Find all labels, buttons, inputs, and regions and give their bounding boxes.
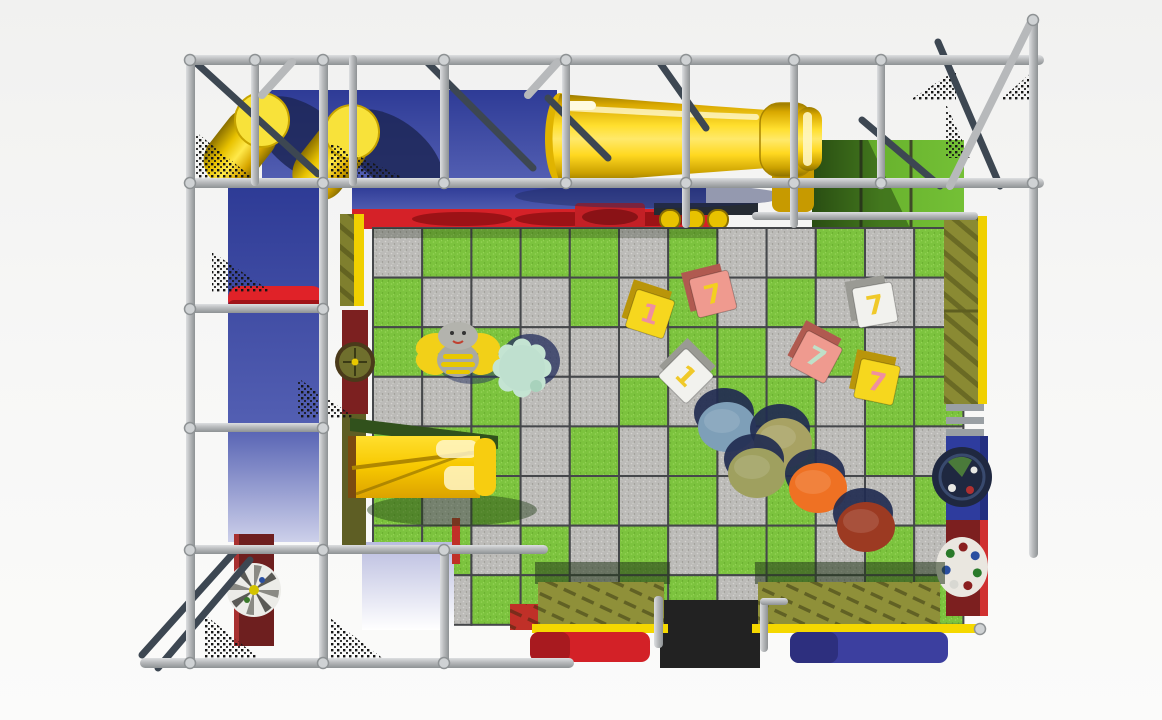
floor-tile (521, 476, 570, 526)
climb-bar (946, 404, 984, 411)
ramp-yellow-edge-left (532, 624, 668, 633)
frame-joint (185, 55, 196, 66)
toy-block-yellow-7: 7 (847, 349, 902, 406)
floor-tile (668, 526, 717, 576)
frame-joint (1028, 15, 1039, 26)
slide-end-bumper (474, 438, 496, 496)
left-wall-blue-light (228, 432, 328, 542)
ramp-cushion-blue-shade (790, 632, 838, 663)
frame-joint (318, 178, 329, 189)
red-disc (412, 212, 512, 226)
yellow-edge-left (354, 214, 364, 306)
floor-tile (570, 278, 619, 328)
slide-lane-highlight (436, 440, 478, 458)
frame-beam-horizontal (186, 545, 548, 554)
tube-bell-highlight (566, 101, 596, 110)
frame-beam-vertical (877, 55, 885, 188)
floor-tile (865, 228, 914, 278)
floor-tile (619, 377, 668, 427)
floor-tile (471, 278, 520, 328)
frame-joint (561, 178, 572, 189)
frame-joint (789, 55, 800, 66)
frame-joint (789, 178, 800, 189)
frame-joint (185, 423, 196, 434)
frame-joint (318, 545, 329, 556)
floor-tile (570, 476, 619, 526)
roller-step (708, 210, 728, 229)
frame-beam-vertical (682, 55, 690, 228)
toy-block-white-7: 7 (845, 274, 899, 329)
floor-tile (767, 278, 816, 328)
floor-tile (717, 327, 766, 377)
frame-beam-horizontal (186, 55, 1044, 65)
ramp-shadow (755, 562, 945, 584)
frame-joint (318, 658, 329, 669)
frame-joint (561, 55, 572, 66)
floor-tile (373, 327, 422, 377)
frame-joint (185, 304, 196, 315)
floor-tile (816, 228, 865, 278)
turtle-head (530, 380, 542, 392)
entry-mat-black (660, 600, 760, 668)
frame-joint (975, 624, 986, 635)
frame-joint (185, 545, 196, 556)
floor-tile (570, 426, 619, 476)
ramp-yellow-edge-right (752, 624, 978, 633)
ramp-slat-texture (538, 582, 664, 626)
frame-joint (318, 423, 329, 434)
floor-tile (619, 476, 668, 526)
frame-beam-vertical (349, 55, 357, 186)
olive-slat-texture (340, 214, 354, 306)
frame-beam-vertical (186, 55, 195, 668)
playground-scene: 171777 (0, 0, 1162, 720)
frame-beam-horizontal (186, 304, 328, 313)
frame-joint (318, 55, 329, 66)
floor-tile (570, 377, 619, 427)
frame-joint (439, 178, 450, 189)
frame-beam-vertical (319, 55, 328, 668)
frame-beam-horizontal (186, 423, 328, 432)
floor-tile (373, 377, 422, 427)
floor-tile (521, 426, 570, 476)
frame-beam-vertical (1029, 16, 1038, 558)
frame-joint (439, 545, 450, 556)
frame-joint (1028, 178, 1039, 189)
frame-beam-vertical (562, 55, 570, 186)
slide-floor-shadow (367, 494, 537, 526)
handrail-post (654, 596, 663, 648)
frame-joint (185, 178, 196, 189)
frame-beam-horizontal (140, 658, 574, 668)
frame-joint (876, 178, 887, 189)
frame-beam-vertical (440, 545, 449, 668)
tube-landing-disc (582, 209, 638, 225)
frame-joint (681, 55, 692, 66)
handrail-post (760, 598, 768, 652)
tube-end-highlight (803, 112, 812, 166)
yellow-edge-right (978, 216, 987, 404)
roller-step (660, 210, 680, 229)
frame-joint (439, 658, 450, 669)
floor-tile (570, 327, 619, 377)
ramp-cushion-red-shade (530, 632, 570, 662)
frame-joint (185, 658, 196, 669)
frame-joint (876, 55, 887, 66)
floor-tile (668, 476, 717, 526)
frame-joint (681, 178, 692, 189)
floor-tile (373, 278, 422, 328)
floor-tile (619, 426, 668, 476)
floor-tile (865, 426, 914, 476)
frame-joint (318, 304, 329, 315)
climb-bar (946, 417, 984, 424)
playground-render: 171777 (0, 0, 1162, 720)
floor-tile (422, 278, 471, 328)
handrail-bar (760, 598, 788, 605)
floor-tile (521, 278, 570, 328)
floor-tile (422, 377, 471, 427)
frame-beam-horizontal (752, 212, 978, 220)
frame-beam-vertical (251, 55, 259, 186)
frame-joint (250, 55, 261, 66)
climb-bar (946, 429, 984, 436)
deck-cast-shadow (373, 228, 718, 238)
frame-beam-vertical (790, 55, 798, 228)
frame-beam-vertical (440, 55, 449, 186)
ramp-shadow (535, 562, 670, 584)
roller-steps (660, 210, 728, 229)
frame-beam-horizontal (186, 178, 1044, 188)
floor-tile (767, 228, 816, 278)
frame-joint (439, 55, 450, 66)
